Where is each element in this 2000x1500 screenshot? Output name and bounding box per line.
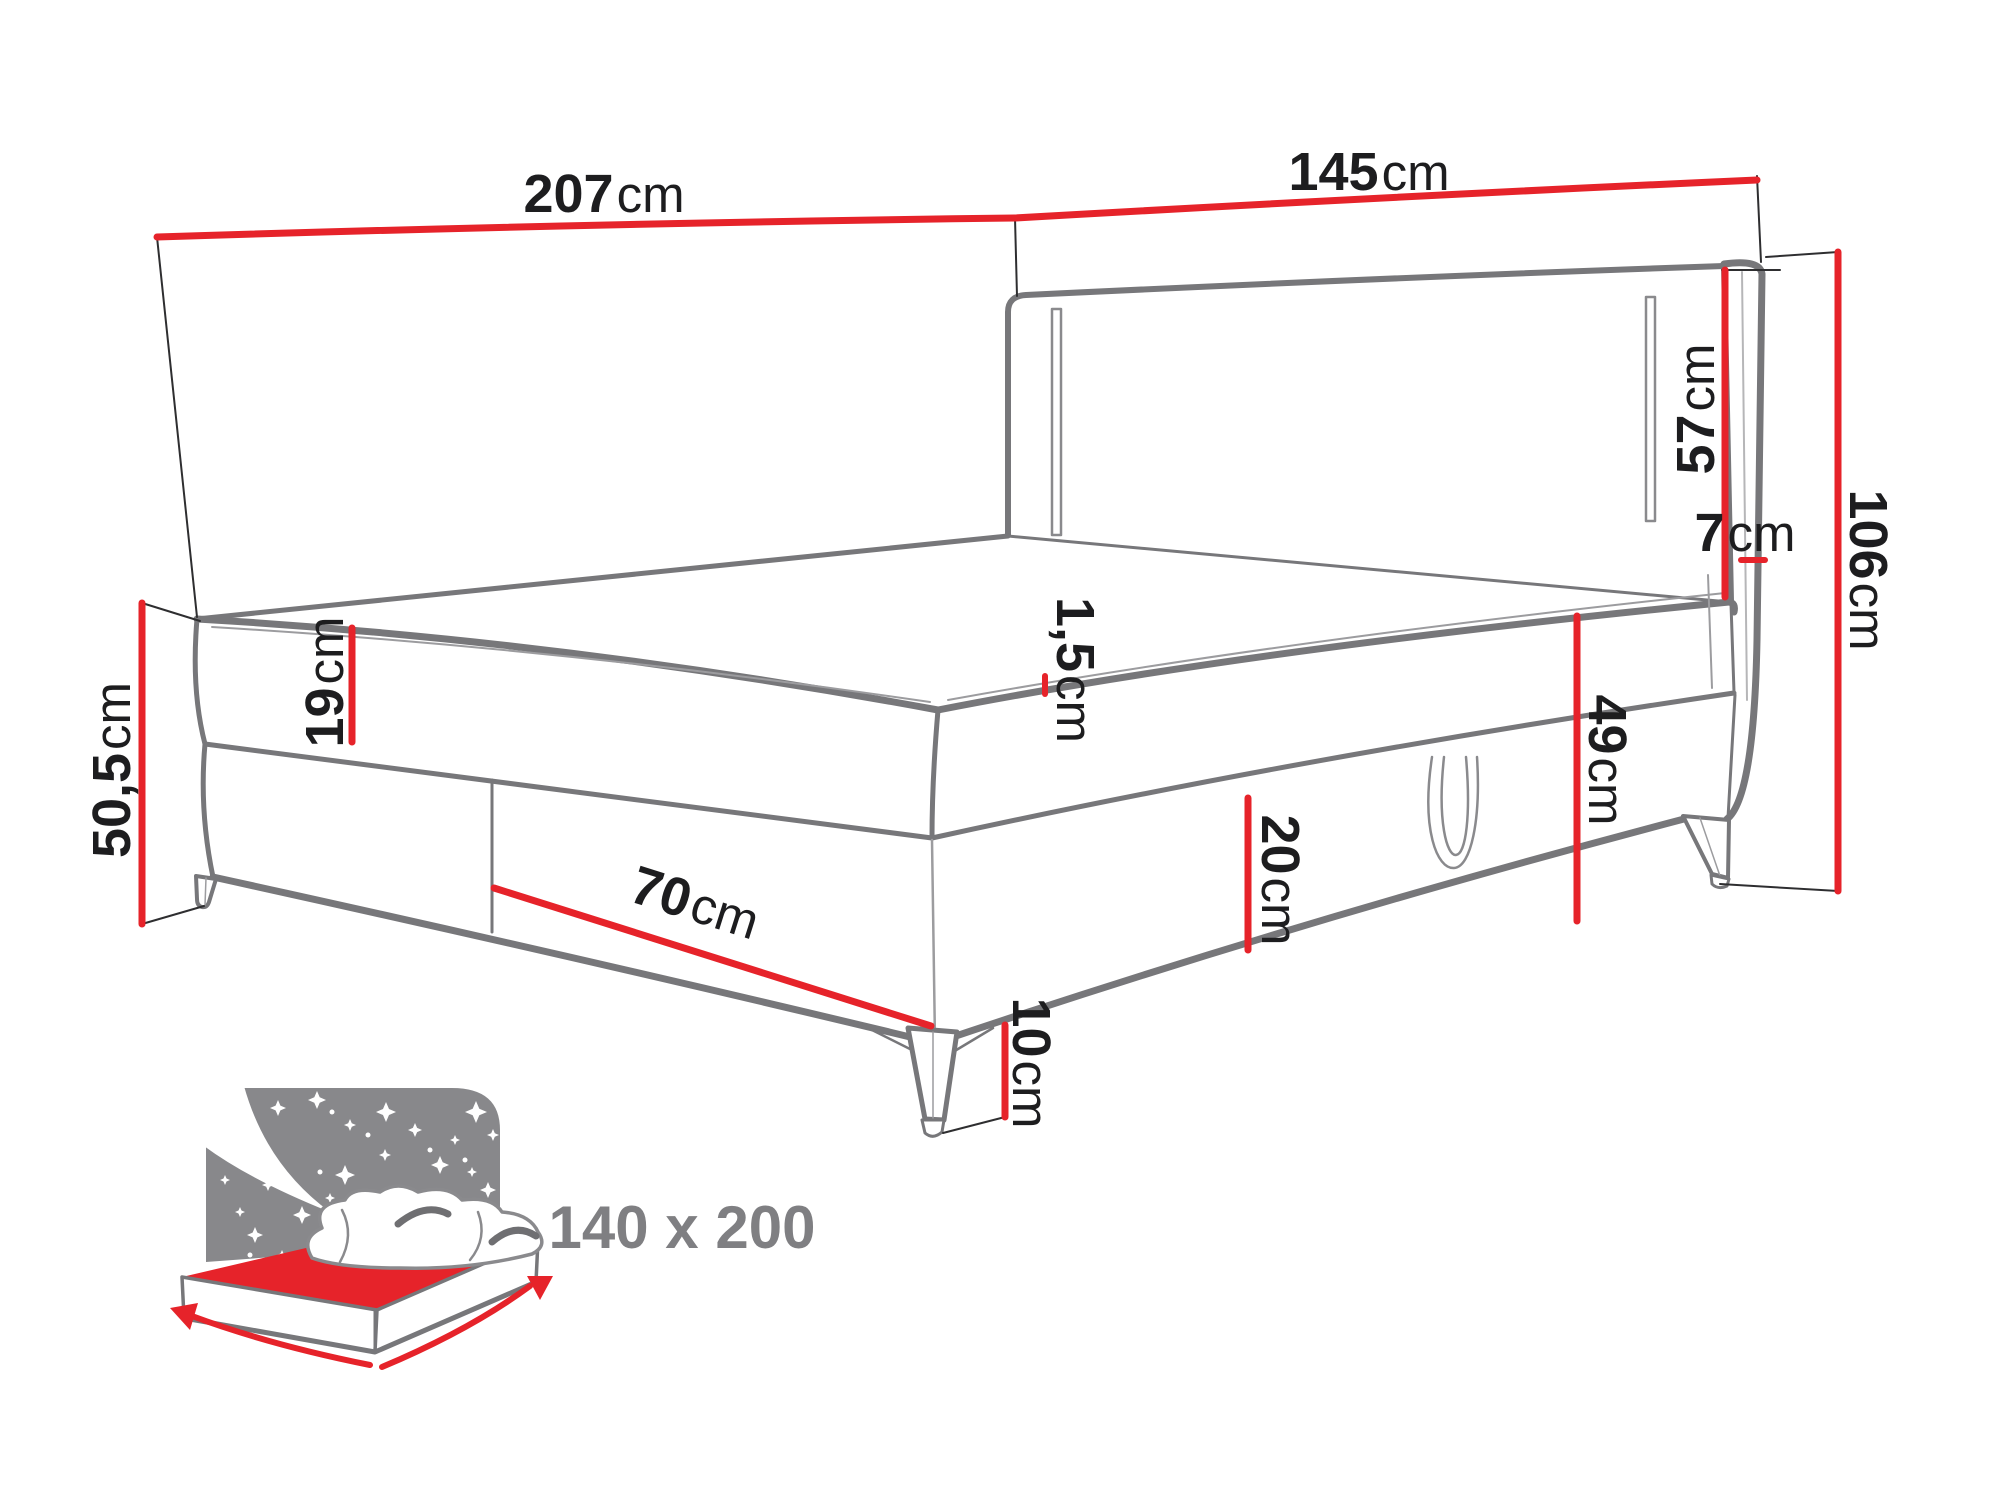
headboard-side-crease [1742,272,1747,700]
dim-mattress-label: 19cm [298,616,352,747]
dim-total-height-label: 106cm [1841,489,1895,650]
led-slit-right [1646,297,1655,521]
box-left-corner [203,744,213,877]
dim-seat-height-label: 50,5cm [85,682,139,858]
bed-drawing [195,263,1762,1137]
dim-headboard-depth-label: 7cm [1694,506,1795,560]
box-bottom-foot [213,877,935,1043]
star-dot-icon [428,1148,433,1153]
star-dot-icon [293,1188,298,1193]
dim-leg-label: 10cm [1004,997,1058,1128]
mattress-front-corner [932,710,938,838]
box-right-edge [1728,695,1735,818]
bed-diagram-canvas [0,0,2000,1500]
dim-base-label: 20cm [1253,814,1307,945]
dim-headboard-height-label: 57cm [1669,343,1723,474]
star-dot-icon [248,1253,253,1258]
box-top-seam-foot [205,744,932,838]
star-dot-icon [463,1158,468,1163]
star-dot-icon [366,1133,371,1138]
right-leg [1683,816,1729,878]
mattress-left-corner [195,619,205,744]
dim-side-height-label: 49cm [1580,694,1634,825]
star-dot-icon [330,1110,335,1115]
box-front-corner-crease [932,840,935,1042]
star-dot-icon [318,1170,323,1175]
dim-length-label: 207cm [523,167,684,221]
dimension-diagram: 207cm 145cm 57cm 7cm 106cm 1,5cm 19cm 50… [0,0,2000,1500]
strap-handle-icon [1428,757,1478,868]
right-leg-foot [1711,875,1729,888]
dim-topper-label: 1,5cm [1048,597,1102,743]
bed-size-icon [170,1086,553,1367]
middle-leg-foot [922,1120,944,1136]
size-badge: 140 x 200 [549,1198,816,1258]
mattress-right-edge [1731,604,1734,692]
dim-width-label: 145cm [1288,145,1449,199]
led-slit-left [1052,309,1061,535]
